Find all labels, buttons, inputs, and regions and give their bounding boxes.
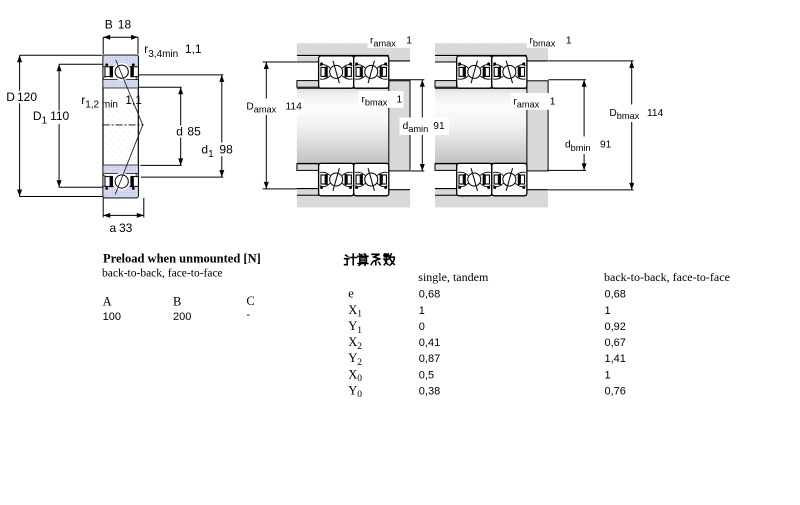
svg-text:98: 98 <box>219 143 233 157</box>
svg-text:0,67: 0,67 <box>605 337 626 349</box>
svg-text:18: 18 <box>118 18 132 32</box>
svg-text:d: d <box>176 125 183 139</box>
svg-text:114: 114 <box>647 108 664 119</box>
svg-text:1,41: 1,41 <box>605 353 626 365</box>
svg-text:e: e <box>348 287 354 301</box>
svg-text:0,68: 0,68 <box>605 289 626 301</box>
svg-text:0,38: 0,38 <box>419 385 440 397</box>
svg-text:0: 0 <box>419 321 425 333</box>
svg-text:C: C <box>246 294 254 308</box>
svg-text:Preload when unmounted [N]: Preload when unmounted [N] <box>103 252 261 266</box>
svg-text:A: A <box>103 295 112 309</box>
svg-text:B: B <box>105 18 113 32</box>
svg-text:0,5: 0,5 <box>419 369 434 381</box>
svg-text:back-to-back, face-to-face: back-to-back, face-to-face <box>102 268 223 280</box>
svg-text:1,1: 1,1 <box>125 93 142 107</box>
svg-text:a: a <box>110 221 117 235</box>
svg-text:back-to-back, face-to-face: back-to-back, face-to-face <box>604 270 730 284</box>
svg-text:0,41: 0,41 <box>419 337 440 349</box>
svg-text:-: - <box>246 309 250 321</box>
svg-text:120: 120 <box>17 90 37 104</box>
svg-text:85: 85 <box>187 125 201 139</box>
svg-text:1,1: 1,1 <box>185 42 202 56</box>
svg-text:0,76: 0,76 <box>605 385 626 397</box>
svg-text:91: 91 <box>600 140 612 151</box>
svg-text:110: 110 <box>50 109 69 123</box>
svg-text:100: 100 <box>103 311 121 323</box>
svg-text:1: 1 <box>419 305 425 317</box>
svg-text:1: 1 <box>406 36 412 47</box>
svg-text:1: 1 <box>605 369 611 381</box>
svg-text:33: 33 <box>119 221 133 235</box>
svg-text:D: D <box>6 90 15 104</box>
svg-text:1: 1 <box>550 97 556 108</box>
svg-text:1: 1 <box>397 95 403 106</box>
svg-text:single, tandem: single, tandem <box>418 270 489 284</box>
svg-text:114: 114 <box>286 101 303 112</box>
svg-text:B: B <box>173 295 181 309</box>
svg-text:0,87: 0,87 <box>419 353 440 365</box>
svg-text:0,68: 0,68 <box>419 289 440 301</box>
svg-text:91: 91 <box>433 121 445 132</box>
svg-text:1: 1 <box>605 305 611 317</box>
svg-text:1: 1 <box>566 36 572 47</box>
svg-text:0,92: 0,92 <box>605 321 626 333</box>
svg-text:200: 200 <box>173 311 191 323</box>
